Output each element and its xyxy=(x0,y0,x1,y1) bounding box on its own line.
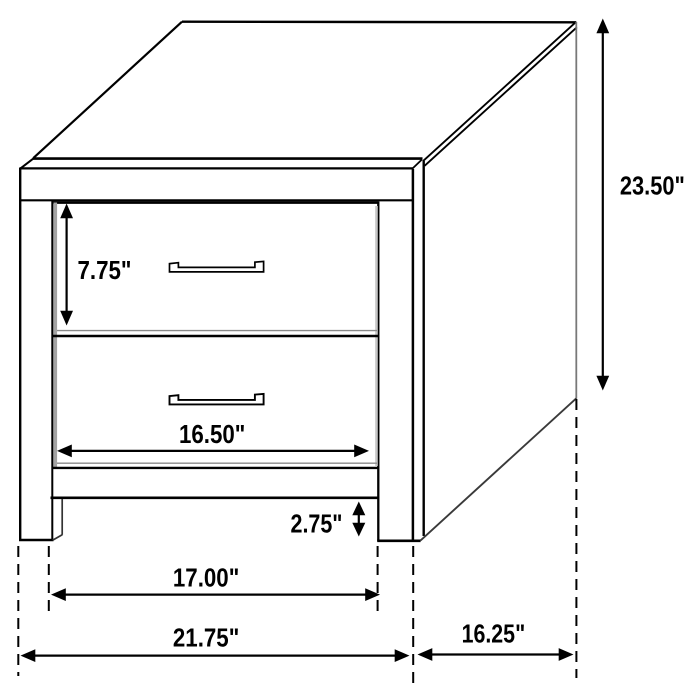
svg-text:2.75": 2.75" xyxy=(291,509,343,539)
svg-text:17.00": 17.00" xyxy=(173,562,239,592)
svg-text:21.75": 21.75" xyxy=(173,623,239,653)
svg-text:7.75": 7.75" xyxy=(78,255,132,285)
svg-text:16.50": 16.50" xyxy=(179,419,245,449)
svg-text:16.25": 16.25" xyxy=(462,619,526,649)
svg-text:23.50": 23.50" xyxy=(620,170,685,200)
